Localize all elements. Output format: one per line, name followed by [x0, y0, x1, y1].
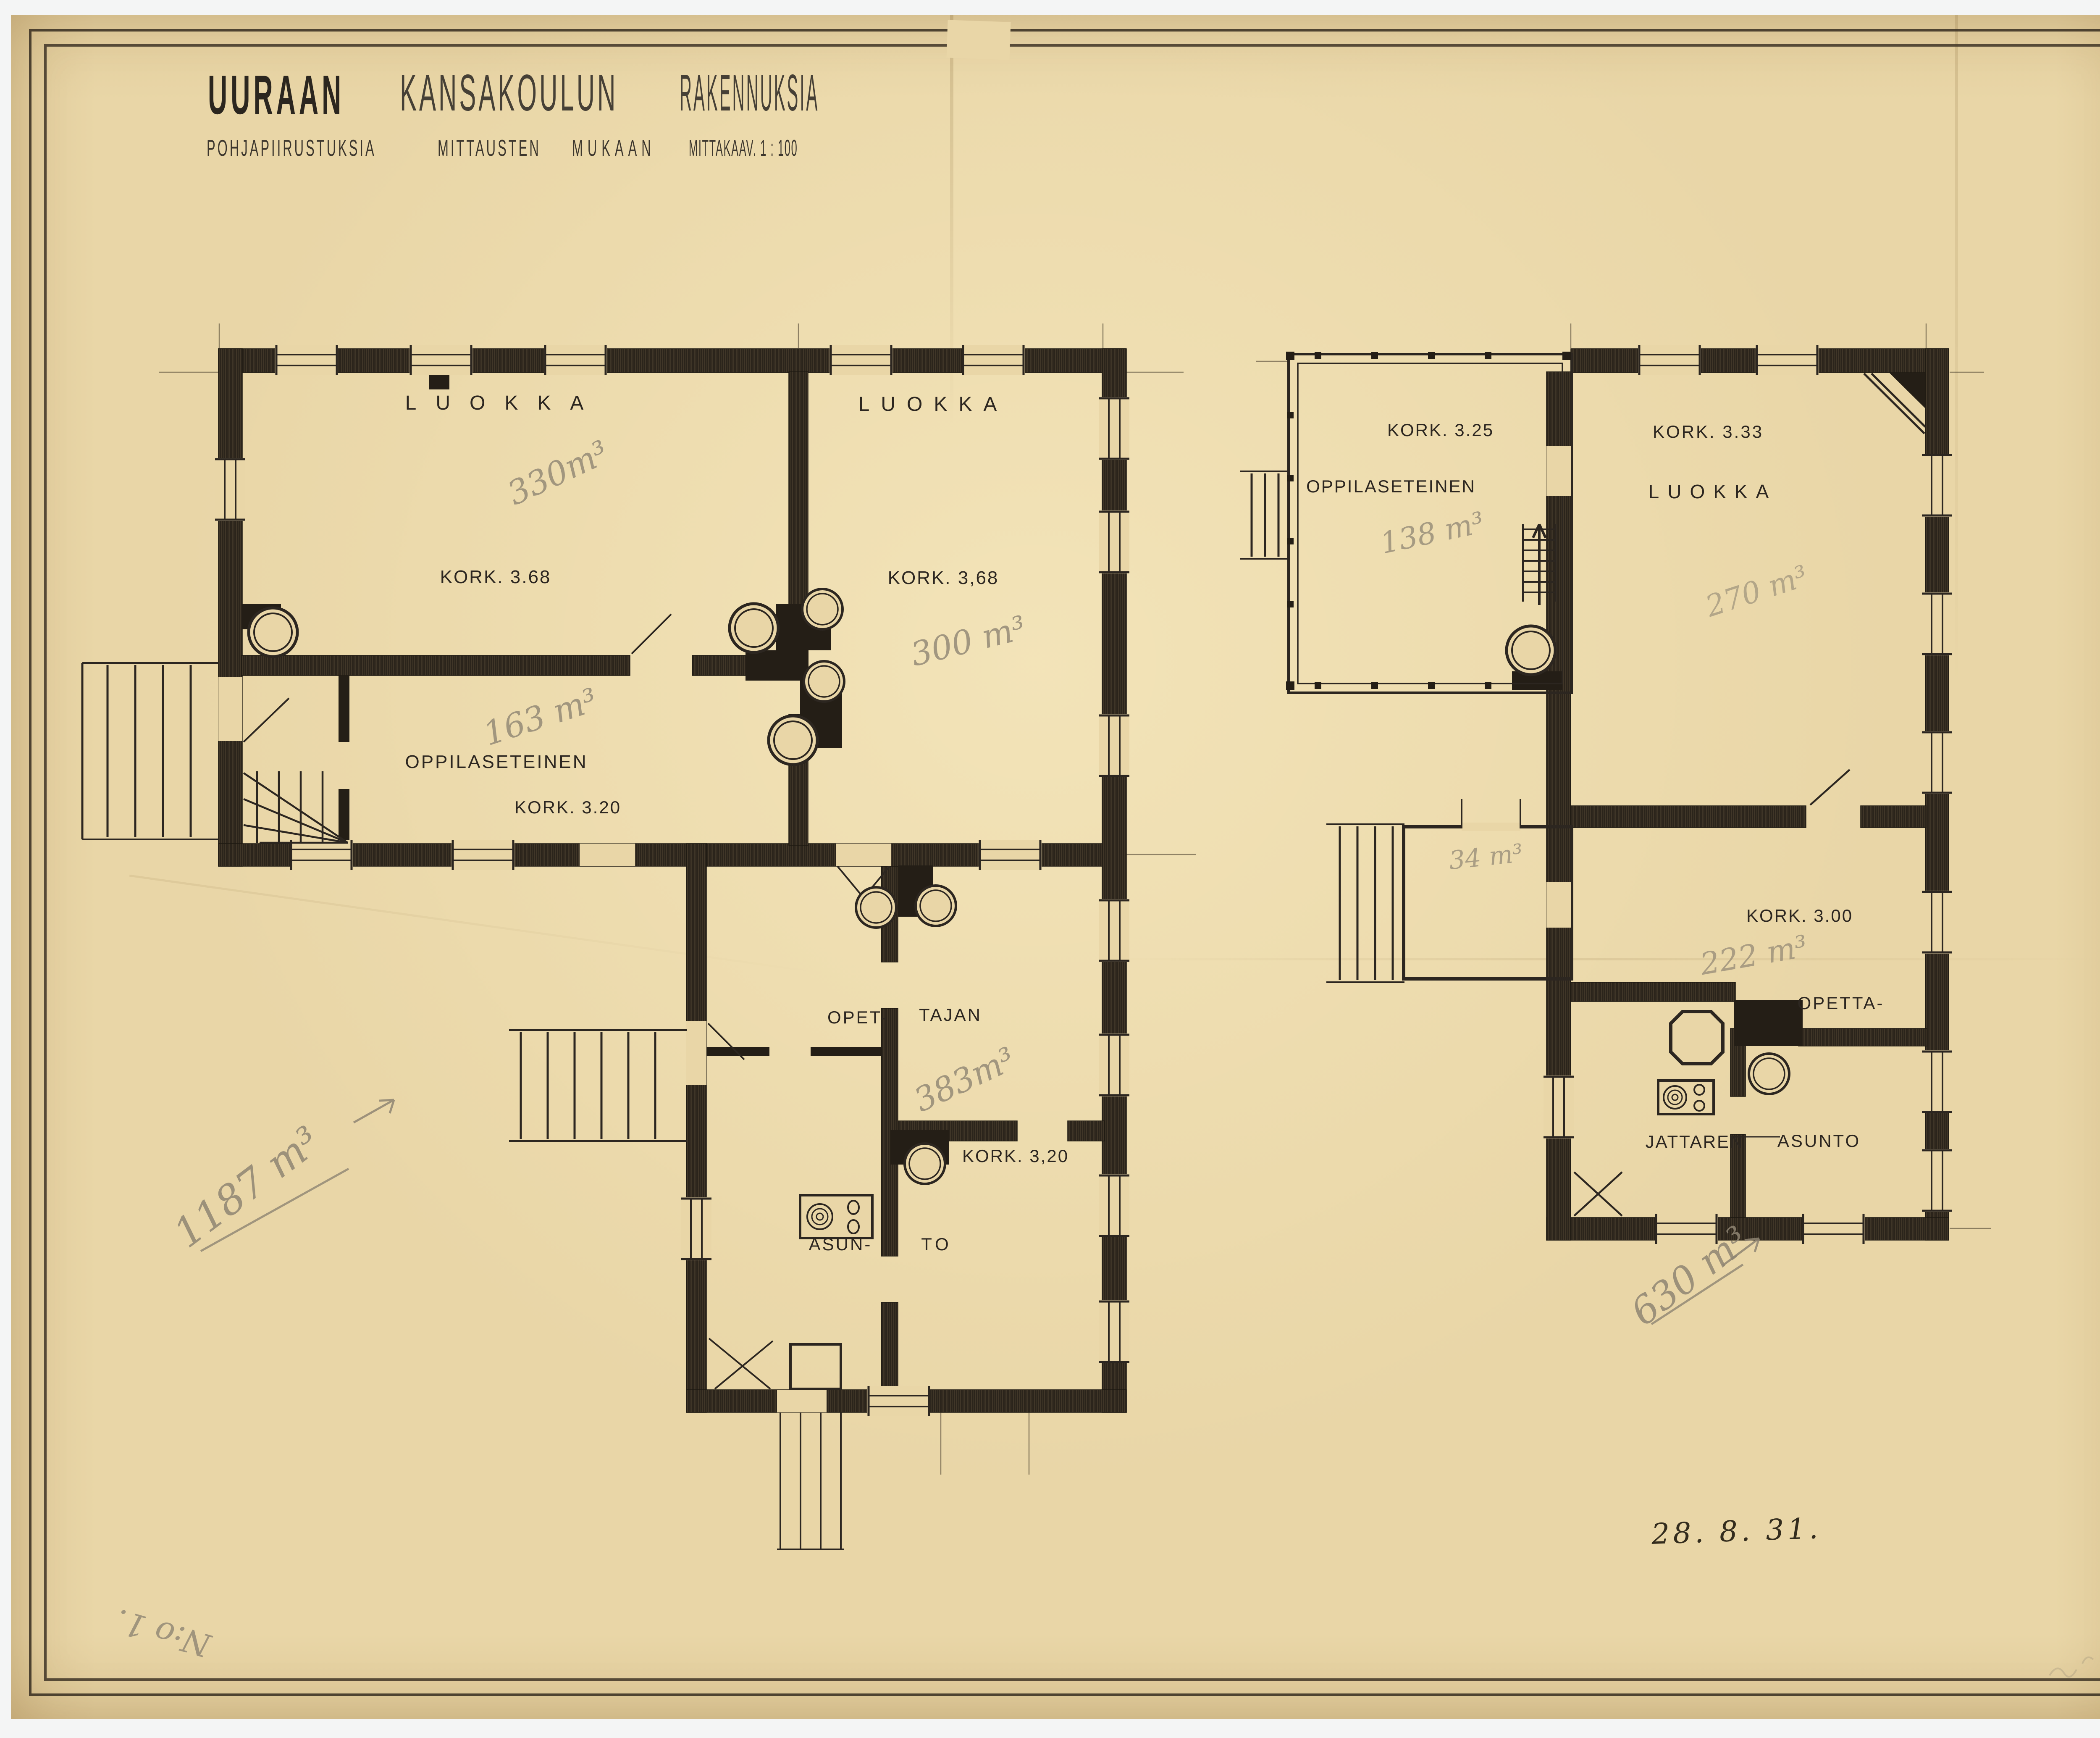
- kitchen-range-icon: [1658, 1081, 1714, 1114]
- window-opening: [1099, 1300, 1129, 1363]
- round-stove-icon: [804, 661, 844, 702]
- room-height-4: KORK. 3,20: [962, 1146, 1069, 1166]
- pencil-volume-222: 222 m³: [1697, 928, 1810, 982]
- round-stove-icon: [1749, 1054, 1789, 1094]
- left-plan-openings: [215, 345, 1129, 1416]
- window-opening: [979, 840, 1042, 870]
- room-height-r2: KORK. 3.33: [1653, 422, 1764, 442]
- round-stove-icon: [802, 589, 843, 629]
- window-opening: [962, 345, 1025, 375]
- left-plan-chimneys: [242, 372, 949, 1165]
- door-opening: [836, 844, 891, 866]
- window-opening: [1922, 454, 1952, 517]
- room-label-opetta: OPETTA-: [1798, 993, 1885, 1013]
- corner-note: N:o 1.: [111, 1602, 215, 1665]
- window-opening: [1638, 345, 1701, 375]
- window-opening: [1922, 1050, 1952, 1113]
- room-label-oppilaseteinen-r: OPPILASETEINEN: [1306, 476, 1476, 496]
- door-opening: [1546, 882, 1571, 928]
- door-opening: [1462, 823, 1520, 831]
- round-stove-icon: [905, 1144, 945, 1184]
- window-opening: [1922, 891, 1952, 954]
- left-plan-walls: [218, 349, 1126, 1412]
- pencil-volume-34: 34 m³: [1448, 839, 1525, 876]
- door-opening: [1546, 446, 1571, 496]
- room-height-r3: KORK. 3.00: [1746, 906, 1853, 926]
- window-opening: [1099, 899, 1129, 962]
- window-opening: [1922, 592, 1952, 655]
- room-label-asunto: ASUNTO: [1777, 1131, 1861, 1151]
- pencil-volume-138: 138 m³: [1377, 505, 1487, 560]
- door-opening: [686, 1021, 706, 1085]
- round-stove-icon: [730, 604, 778, 652]
- room-height-1: KORK. 3.68: [440, 567, 551, 587]
- scanned-drawing-sheet: UURAAN KANSAKOULUN RAKENNUKSIA POHJAPIIR…: [0, 0, 2100, 1738]
- exterior-stair-left: [82, 663, 219, 839]
- room-label-oppilaseteinen: OPPILASETEINEN: [405, 752, 588, 772]
- pencil-volume-300: 300 m³: [907, 609, 1030, 674]
- border-tear: [946, 20, 1011, 60]
- window-opening: [275, 345, 338, 375]
- room-label-tajan: TAJAN: [919, 1005, 982, 1025]
- window-opening: [1922, 1149, 1952, 1212]
- room-label-luokka-2: LUOKKA: [858, 393, 1008, 415]
- pencil-volume-270: 270 m³: [1701, 559, 1812, 624]
- faint-pencil-scribble: [2050, 1657, 2093, 1677]
- right-plan-openings: [1543, 345, 1952, 1244]
- window-opening: [1922, 731, 1952, 794]
- left-building-plan: LUOKKA KORK. 3.68 LUOKKA KORK. 3,68 OPPI…: [82, 345, 1129, 1549]
- door-opening: [777, 1390, 827, 1412]
- window-opening: [1099, 510, 1129, 573]
- exterior-stair-bottom: [777, 1412, 844, 1549]
- pencil-volume-383: 383m³: [908, 1040, 1021, 1120]
- room-label-luokka-1: LUOKKA: [405, 392, 603, 414]
- window-opening: [409, 345, 472, 375]
- pencil-volume-330: 330m³: [502, 434, 614, 513]
- round-stove-icon: [916, 886, 956, 926]
- kitchen-range-icon: [800, 1195, 872, 1238]
- round-stove-icon: [769, 716, 817, 765]
- window-opening: [829, 345, 892, 375]
- closet-walls: [790, 1344, 841, 1389]
- window-opening: [1543, 1075, 1574, 1139]
- tiled-stove-icon: [1671, 1012, 1723, 1064]
- window-opening: [451, 840, 514, 870]
- room-height-3: KORK. 3.20: [514, 797, 621, 817]
- exterior-stair-middle: [509, 1030, 687, 1141]
- window-opening: [1802, 1214, 1865, 1244]
- room-height-r1: KORK. 3.25: [1387, 420, 1494, 440]
- window-opening: [1099, 714, 1129, 777]
- window-opening: [1099, 397, 1129, 460]
- exterior-stair-annex: [1326, 824, 1404, 982]
- floor-plan-drawing: LUOKKA KORK. 3.68 LUOKKA KORK. 3,68 OPPI…: [0, 0, 2100, 1738]
- room-label-to: TO: [921, 1234, 952, 1254]
- right-building-plan: KORK. 3.25 OPPILASETEINEN KORK. 3.33 LUO…: [1240, 345, 1952, 1244]
- exterior-stair-veranda: [1240, 471, 1289, 559]
- window-opening: [1756, 345, 1819, 375]
- date-note: 28. 8. 31.: [1651, 1512, 1822, 1551]
- room-label-opet: OPET-: [827, 1007, 889, 1027]
- window-opening: [1099, 1033, 1129, 1096]
- round-stove-icon: [1507, 626, 1555, 675]
- door-opening: [580, 844, 635, 866]
- pencil-volume-163: 163 m³: [479, 681, 602, 753]
- room-label-luokka-r: LUOKKA: [1648, 481, 1777, 502]
- window-opening: [867, 1386, 930, 1416]
- room-label-jattaren: JATTAREN: [1646, 1132, 1744, 1152]
- window-opening: [681, 1197, 711, 1260]
- pencil-arrow-icon: [354, 1100, 394, 1123]
- round-stove-icon: [856, 887, 896, 928]
- door-opening: [218, 677, 242, 741]
- winder-staircase: [244, 771, 348, 843]
- window-opening: [290, 840, 353, 870]
- room-label-asun: ASUN-: [809, 1234, 872, 1254]
- window-opening: [215, 458, 245, 521]
- room-height-2: KORK. 3,68: [888, 568, 999, 588]
- round-stove-icon: [249, 608, 297, 657]
- pencil-volume-1187: 1187 m³: [165, 1117, 329, 1257]
- window-opening: [544, 345, 607, 375]
- window-opening: [1099, 1174, 1129, 1237]
